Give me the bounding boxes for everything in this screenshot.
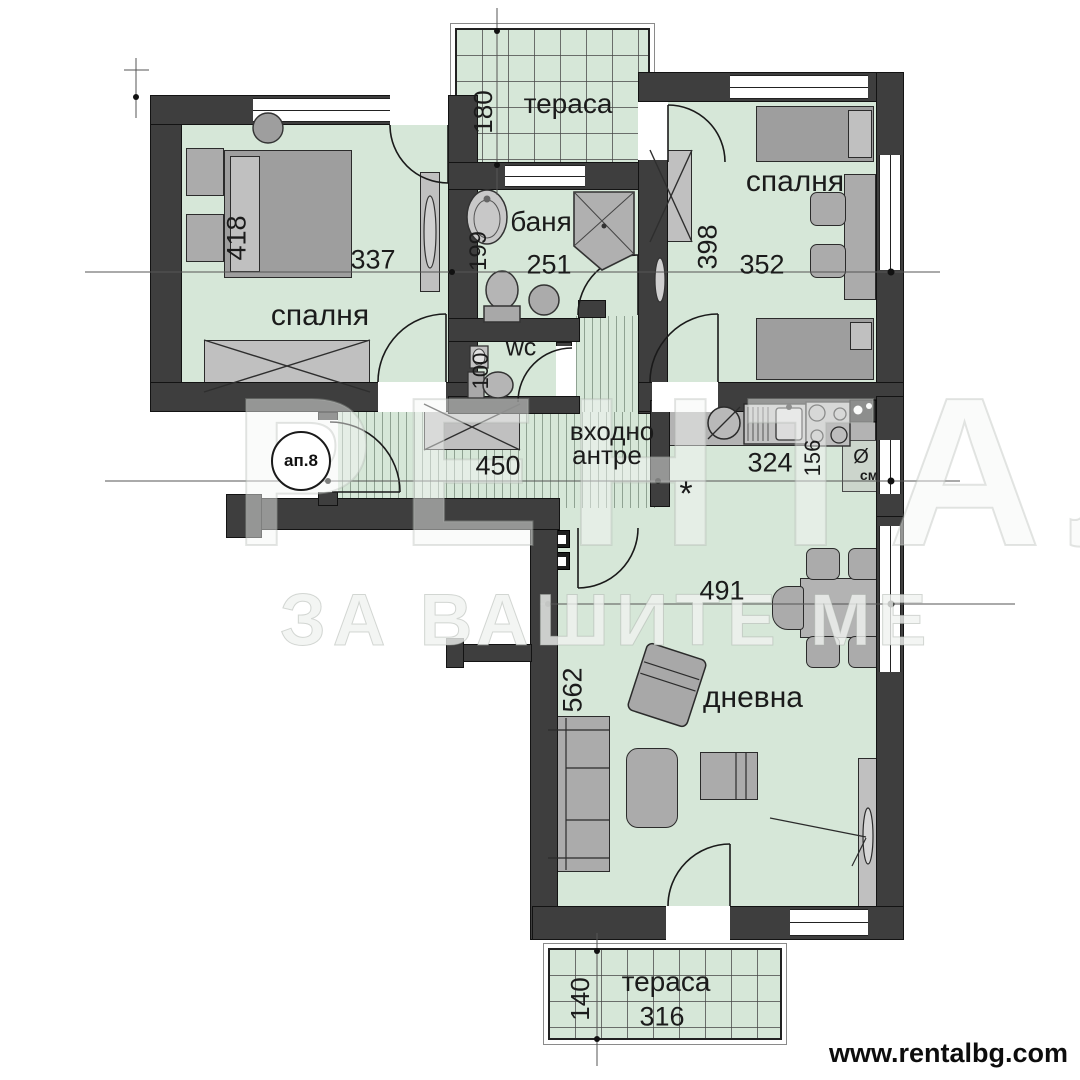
window [253,98,390,122]
window [505,165,585,187]
watermark-slogan: ЗА ВАШИТЕ МЕ [280,584,933,657]
wall [150,95,182,412]
label-hall-line2: антре [572,442,642,468]
nightstand [186,148,224,196]
dim-terrace-top-depth: 180 [470,90,496,133]
website-label: www.rentalbg.com [829,1038,1068,1069]
desk-chair [810,244,846,278]
dim-living-height: 562 [560,667,587,712]
label-bedroom-right: спалня [746,167,844,197]
dim-kitchen-width: 324 [747,450,792,477]
watermark-brand: РЕНТАЛ [232,366,1080,578]
dim-bedroom-right-width: 352 [739,252,784,279]
window [790,909,868,936]
window [730,75,868,99]
dim-terrace-bottom-depth: 140 [567,977,593,1020]
label-bathroom: баня [510,208,572,236]
washer-diameter-icon: Ø [853,447,869,467]
dim-bathroom-width: 251 [526,252,571,279]
nightstand [186,214,224,262]
dim-wc-height: 100 [470,353,492,390]
dim-living-width: 491 [699,578,744,605]
dim-bedroom-right-height: 398 [695,224,722,269]
door-opening [638,102,668,160]
dim-bedroom-left-width: 337 [350,247,395,274]
coffee-table [626,748,678,828]
loveseat [700,752,758,800]
window [879,155,901,270]
dim-bathroom-height: 199 [467,231,491,271]
dim-hall-width: 450 [475,453,520,480]
bed-pillow [848,110,872,158]
door-opening [390,95,448,125]
washer-label: см [860,468,878,482]
label-terrace-bottom: тераса [622,968,711,996]
dim-terrace-bottom-width: 316 [639,1004,684,1031]
dim-kitchen-depth: 156 [802,440,824,477]
door-opening [666,906,730,940]
floor-plan: РЕНТАЛ ЗА ВАШИТЕ МЕ спалня 337 418 баня … [0,0,1080,1080]
dressing-mirror [420,172,440,292]
dim-bedroom-left-height: 418 [224,215,251,260]
gas-connection-icon: * [679,477,692,511]
wall [578,300,606,318]
label-terrace-top: тераса [524,90,613,118]
apartment-badge-text: ап.8 [284,451,318,471]
label-bedroom-left: спалня [271,301,369,331]
label-wc: wc [506,336,537,361]
bed-pillow [850,322,872,350]
apartment-badge: ап.8 [271,431,331,491]
label-living: дневна [703,683,803,713]
desk [844,174,876,300]
